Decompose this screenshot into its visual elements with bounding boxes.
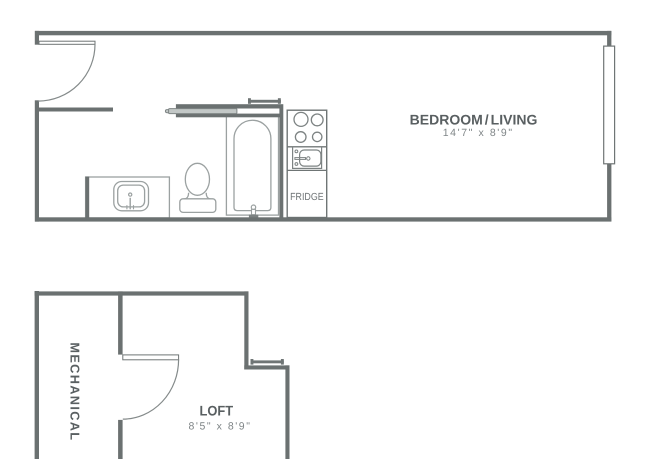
svg-text:BEDROOM/LIVING: BEDROOM/LIVING [410, 111, 538, 127]
svg-text:LOFT: LOFT [200, 403, 234, 419]
svg-text:FRIDGE: FRIDGE [290, 192, 324, 203]
svg-text:8'5" x 8'9": 8'5" x 8'9" [189, 420, 252, 432]
svg-text:14'7" x 8'9": 14'7" x 8'9" [443, 127, 514, 139]
svg-text:MECHANICAL: MECHANICAL [68, 342, 83, 441]
